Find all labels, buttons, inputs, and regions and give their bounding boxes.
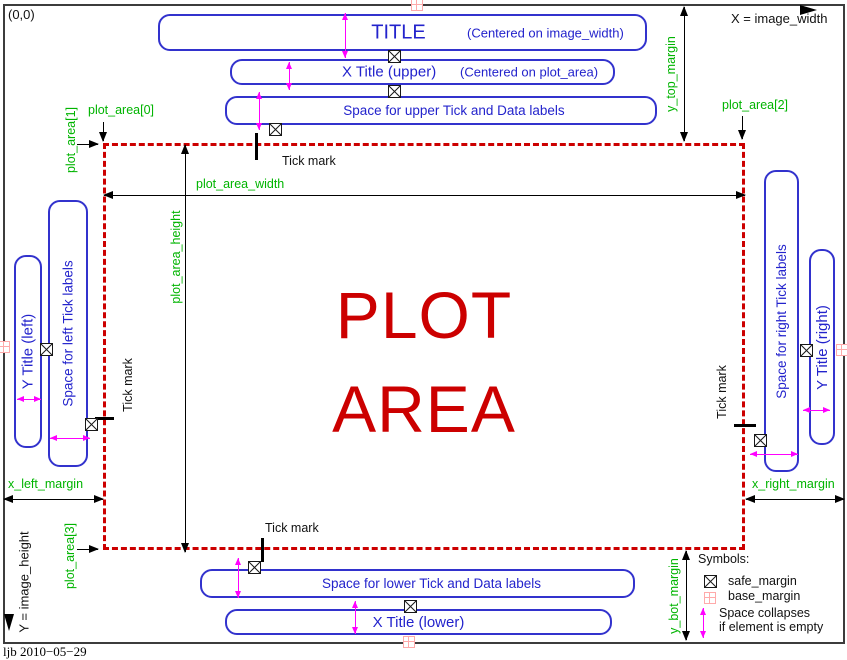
plot-area3-pointer-arrow [77, 549, 98, 550]
tick-mark-top-label: Tick mark [282, 155, 336, 169]
legend-collapse-line1: Space collapses [719, 607, 810, 621]
plot-area-word-line2: AREA [103, 362, 745, 456]
base-margin-icon [403, 636, 415, 648]
y-title-right-label: Y Title (right) [814, 305, 831, 390]
collapse-arrow-space-right [750, 454, 798, 455]
base-margin-icon [411, 0, 423, 11]
safe-margin-icon [248, 561, 261, 574]
credit-label: ljb 2010−05−29 [3, 645, 87, 659]
space-right-label: Space for right Tick labels [774, 244, 789, 399]
legend-safe-margin-label: safe_margin [728, 575, 797, 589]
collapse-arrow-space-lower [238, 558, 239, 598]
base-margin-icon [836, 344, 847, 356]
x-right-margin-arrow [746, 499, 844, 500]
legend-collapse-line2: if element is empty [719, 621, 823, 635]
space-right-box: Space for right Tick labels [764, 170, 799, 472]
title-box: TITLE (Centered on image_width) [158, 14, 647, 51]
safe-margin-icon [388, 50, 401, 63]
space-upper-box: Space for upper Tick and Data labels [225, 96, 657, 125]
title-label: TITLE [371, 21, 425, 44]
plot-area-width-arrow [104, 195, 745, 196]
title-note: (Centered on image_width) [467, 25, 624, 40]
safe-margin-icon [704, 575, 717, 588]
space-left-label: Space for left Tick labels [61, 260, 76, 406]
origin-label: (0,0) [8, 8, 35, 22]
x-axis-label: X = image_width [731, 12, 827, 26]
x-title-lower-label: X Title (lower) [373, 614, 465, 631]
y-bot-margin-arrow [686, 551, 687, 640]
plot-area1-pointer-arrow [77, 144, 98, 145]
safe-margin-icon [388, 85, 401, 98]
safe-margin-icon [404, 600, 417, 613]
y-top-margin-arrow [684, 7, 685, 141]
x-left-margin-arrow [4, 499, 103, 500]
plot-area2-label: plot_area[2] [722, 99, 788, 113]
collapse-arrow-icon [703, 608, 704, 638]
safe-margin-icon [269, 123, 282, 136]
legend-title: Symbols: [698, 553, 749, 567]
space-upper-label: Space for upper Tick and Data labels [343, 103, 564, 118]
tick-mark-bottom-label: Tick mark [265, 522, 319, 536]
plot-area-word-line1: PLOT [103, 268, 745, 362]
plot-area-word: PLOT AREA [103, 268, 745, 456]
plot-layout-diagram: (0,0) X = image_width Y = image_height P… [0, 0, 847, 660]
base-margin-icon [704, 592, 716, 604]
collapse-arrow-y-title-left [17, 399, 41, 400]
collapse-arrow-space-left [50, 438, 90, 439]
base-margin-icon [0, 341, 10, 353]
y-title-left-box: Y Title (left) [14, 255, 42, 448]
collapse-arrow-x-title-upper [289, 62, 290, 90]
plot-area0-label: plot_area[0] [88, 104, 154, 118]
safe-margin-icon [754, 434, 767, 447]
y-title-left-label: Y Title (left) [20, 314, 37, 390]
x-title-upper-label: X Title (upper) [342, 64, 436, 81]
plot-area-height-arrow [185, 145, 186, 552]
x-right-margin-label: x_right_margin [752, 478, 835, 492]
x-title-upper-note: (Centered on plot_area) [460, 65, 598, 80]
x-left-margin-label: x_left_margin [8, 478, 83, 492]
plot-area2-pointer-arrow [742, 116, 743, 139]
plot-area0-pointer-arrow [103, 122, 104, 141]
x-title-lower-box: X Title (lower) [225, 609, 612, 635]
collapse-arrow-x-title-lower [355, 601, 356, 634]
tick-mark-right [734, 424, 756, 427]
plot-area-width-label: plot_area_width [196, 178, 284, 192]
y-axis-arrowhead-icon [4, 614, 14, 631]
legend-base-margin-label: base_margin [728, 590, 800, 604]
collapse-arrow-title [345, 13, 346, 58]
space-left-box: Space for left Tick labels [48, 200, 88, 467]
space-lower-label: Space for lower Tick and Data labels [322, 576, 541, 591]
tick-mark-top [255, 133, 258, 160]
safe-margin-icon [85, 418, 98, 431]
tick-mark-bottom [261, 538, 264, 562]
collapse-arrow-space-upper [259, 92, 260, 130]
safe-margin-icon [800, 344, 813, 357]
collapse-arrow-y-title-right [803, 410, 830, 411]
space-lower-box: Space for lower Tick and Data labels [200, 569, 635, 598]
safe-margin-icon [40, 343, 53, 356]
